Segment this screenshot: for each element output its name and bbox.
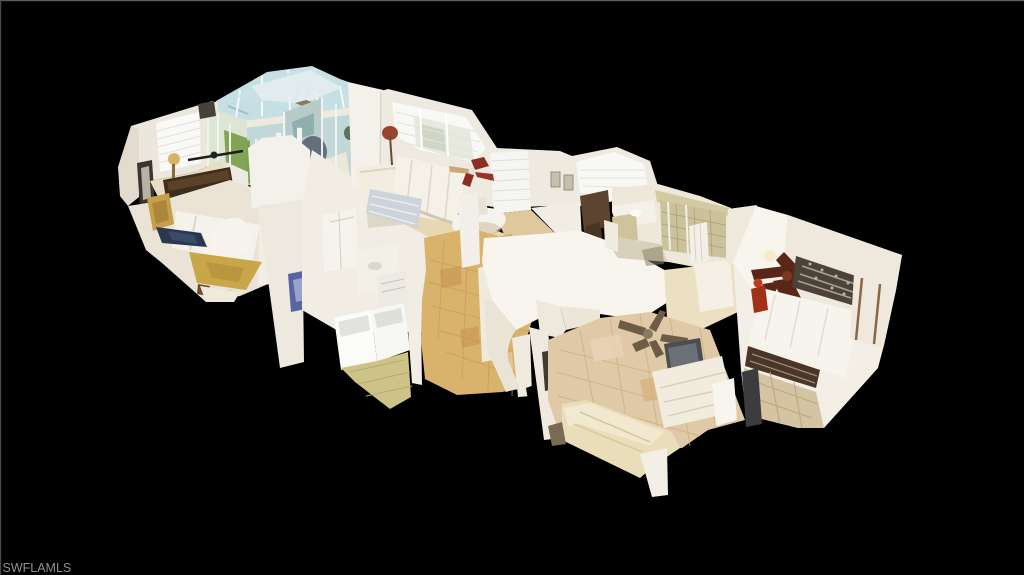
svg-text:SWFLAMLS: SWFLAMLS: [3, 561, 72, 575]
